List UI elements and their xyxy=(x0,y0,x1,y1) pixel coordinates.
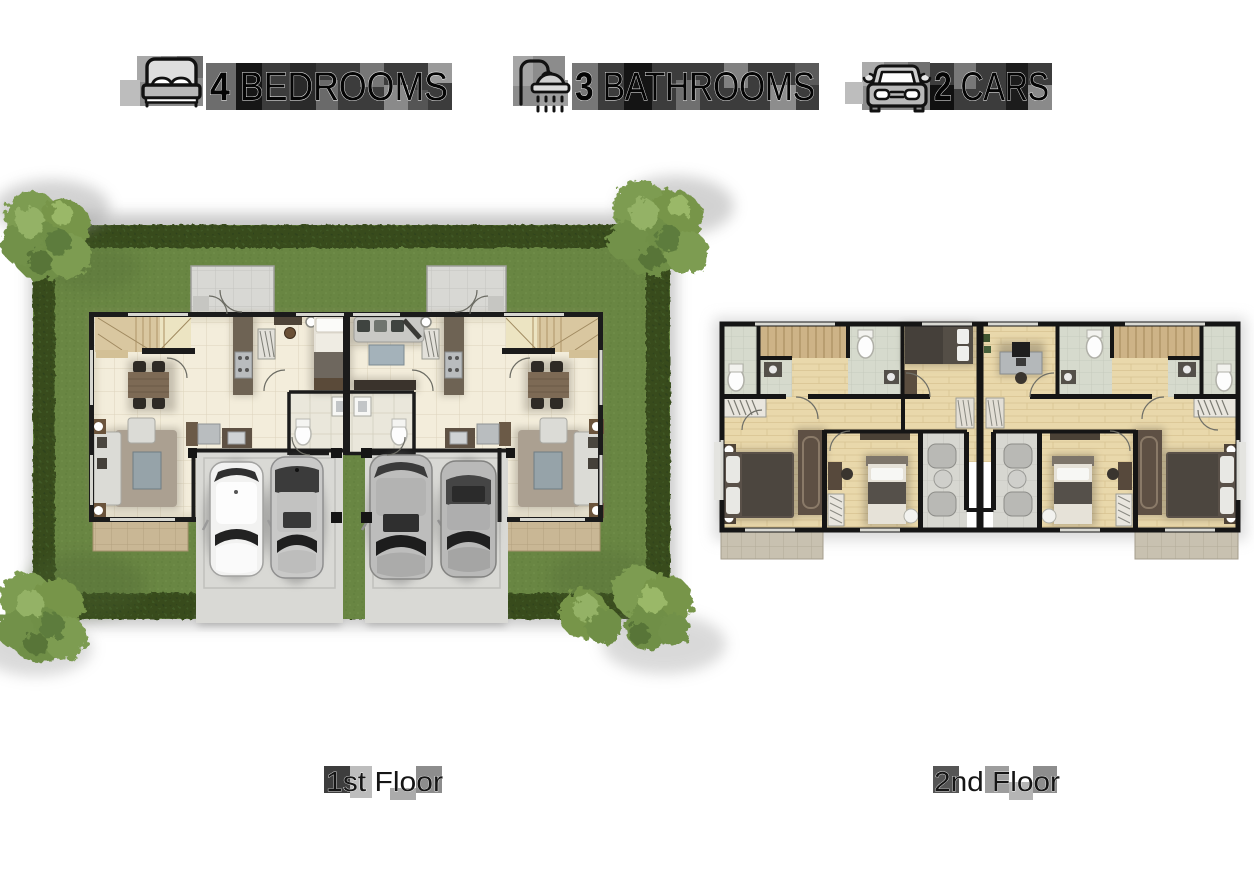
svg-text:1st Floor: 1st Floor xyxy=(326,766,443,797)
svg-text:4 BEDROOMS: 4 BEDROOMS xyxy=(210,65,448,109)
svg-text:2 CARS: 2 CARS xyxy=(934,65,1049,109)
svg-text:2nd Floor: 2nd Floor xyxy=(934,766,1060,797)
svg-text:3 BATHROOMS: 3 BATHROOMS xyxy=(575,65,815,109)
